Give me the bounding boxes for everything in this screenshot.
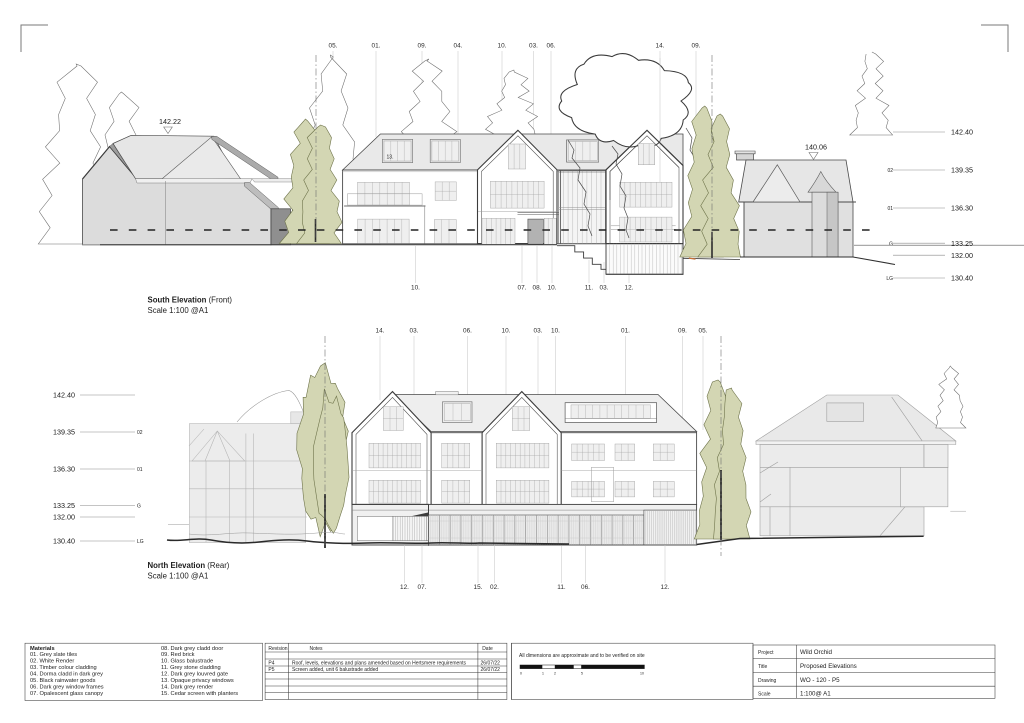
svg-text:09.: 09. xyxy=(678,328,687,335)
svg-text:01.: 01. xyxy=(621,328,630,335)
svg-text:132.00: 132.00 xyxy=(951,251,973,260)
svg-text:08. Dark grey cladd door: 08. Dark grey cladd door xyxy=(161,646,223,652)
svg-text:02: 02 xyxy=(887,168,893,174)
svg-text:Materials: Materials xyxy=(30,646,55,652)
svg-text:05.: 05. xyxy=(699,328,708,335)
svg-text:11.: 11. xyxy=(585,285,594,292)
svg-text:06. Dark grey window frames: 06. Dark grey window frames xyxy=(30,685,104,691)
svg-text:Screen added, unit 6 balustrad: Screen added, unit 6 balustrade added xyxy=(292,667,378,673)
svg-text:Roof, levels, elevations and p: Roof, levels, elevations and plans amend… xyxy=(292,660,466,666)
svg-text:10.: 10. xyxy=(498,43,507,50)
svg-text:10.: 10. xyxy=(551,328,560,335)
svg-text:14. Dark grey render: 14. Dark grey render xyxy=(161,685,213,691)
svg-text:LG: LG xyxy=(886,276,893,282)
svg-text:12. Dark grey louvred gate: 12. Dark grey louvred gate xyxy=(161,672,228,678)
svg-text:G: G xyxy=(889,241,893,247)
svg-text:10: 10 xyxy=(640,672,644,676)
svg-text:03.: 03. xyxy=(529,43,538,50)
svg-text:11. Grey stone cladding: 11. Grey stone cladding xyxy=(161,665,221,671)
svg-text:142.40: 142.40 xyxy=(951,128,973,137)
svg-text:Revision: Revision xyxy=(268,646,287,652)
svg-text:09.: 09. xyxy=(692,43,701,50)
svg-text:04.: 04. xyxy=(454,43,463,50)
svg-text:South Elevation (Front): South Elevation (Front) xyxy=(148,296,233,305)
svg-text:26/07/22: 26/07/22 xyxy=(481,660,501,666)
svg-text:12.: 12. xyxy=(400,584,409,591)
svg-text:07.: 07. xyxy=(518,285,527,292)
svg-text:Notes: Notes xyxy=(310,646,324,652)
svg-text:LG: LG xyxy=(137,539,144,545)
svg-text:136.30: 136.30 xyxy=(53,465,75,474)
svg-text:Wild Orchid: Wild Orchid xyxy=(800,649,833,656)
svg-text:15.: 15. xyxy=(474,584,483,591)
svg-text:1:100@ A1: 1:100@ A1 xyxy=(800,690,831,697)
svg-text:Date: Date xyxy=(482,646,493,652)
svg-text:2: 2 xyxy=(554,672,556,676)
svg-text:Title: Title xyxy=(758,664,767,670)
svg-text:Scale 1:100 @A1: Scale 1:100 @A1 xyxy=(148,306,209,315)
svg-text:02: 02 xyxy=(137,430,143,436)
svg-text:139.35: 139.35 xyxy=(53,428,75,437)
svg-text:03.: 03. xyxy=(534,328,543,335)
svg-text:142.40: 142.40 xyxy=(53,391,75,400)
svg-text:09. Red brick: 09. Red brick xyxy=(161,652,195,658)
svg-text:10.: 10. xyxy=(502,328,511,335)
svg-text:132.00: 132.00 xyxy=(53,513,75,522)
svg-text:10.: 10. xyxy=(548,285,557,292)
svg-text:Scale: Scale xyxy=(758,691,771,697)
svg-text:08.: 08. xyxy=(533,285,542,292)
svg-text:133.25: 133.25 xyxy=(951,239,973,248)
svg-text:G: G xyxy=(137,504,141,510)
svg-text:04. Dorma cladd in dark grey: 04. Dorma cladd in dark grey xyxy=(30,672,103,678)
svg-text:02.: 02. xyxy=(490,584,499,591)
svg-text:06.: 06. xyxy=(547,43,556,50)
svg-text:10.: 10. xyxy=(411,285,420,292)
svg-text:07.: 07. xyxy=(418,584,427,591)
svg-text:0: 0 xyxy=(520,672,522,676)
svg-text:14.: 14. xyxy=(656,43,665,50)
svg-text:133.25: 133.25 xyxy=(53,501,75,510)
svg-text:1: 1 xyxy=(542,672,544,676)
svg-text:Proposed Elevations: Proposed Elevations xyxy=(800,663,857,670)
svg-text:Scale 1:100 @A1: Scale 1:100 @A1 xyxy=(148,572,209,581)
svg-text:07. Opalescent glass canopy: 07. Opalescent glass canopy xyxy=(30,691,103,697)
svg-text:05.: 05. xyxy=(329,43,338,50)
svg-text:5: 5 xyxy=(581,672,583,676)
svg-text:02. White Render: 02. White Render xyxy=(30,659,74,665)
svg-text:01: 01 xyxy=(137,467,143,473)
svg-text:09.: 09. xyxy=(418,43,427,50)
svg-text:03. Timber colour cladding: 03. Timber colour cladding xyxy=(30,665,97,671)
svg-text:03.: 03. xyxy=(600,285,609,292)
svg-text:26/07/22: 26/07/22 xyxy=(481,667,501,673)
svg-text:All dimensions are approximate: All dimensions are approximate and to be… xyxy=(519,653,645,659)
svg-text:12.: 12. xyxy=(625,285,634,292)
svg-text:13. Opaque privacy windows: 13. Opaque privacy windows xyxy=(161,678,234,684)
svg-text:06.: 06. xyxy=(581,584,590,591)
svg-text:10. Glass balustrade: 10. Glass balustrade xyxy=(161,659,213,665)
svg-text:12.: 12. xyxy=(661,584,670,591)
svg-text:North Elevation (Rear): North Elevation (Rear) xyxy=(148,561,230,570)
svg-text:142.22: 142.22 xyxy=(159,117,181,126)
svg-text:01. Grey slate tiles: 01. Grey slate tiles xyxy=(30,652,77,658)
svg-text:Project: Project xyxy=(758,650,774,656)
svg-text:11.: 11. xyxy=(557,584,566,591)
svg-text:Drawing: Drawing xyxy=(758,678,777,684)
svg-text:130.40: 130.40 xyxy=(951,274,973,283)
svg-text:01.: 01. xyxy=(372,43,381,50)
svg-text:03.: 03. xyxy=(410,328,419,335)
svg-text:13.: 13. xyxy=(387,155,394,161)
svg-text:01: 01 xyxy=(887,206,893,212)
svg-text:05. Black rainwater goods: 05. Black rainwater goods xyxy=(30,678,96,684)
svg-text:15. Cedar screen with planters: 15. Cedar screen with planters xyxy=(161,691,238,697)
svg-text:WO - 120 - P5: WO - 120 - P5 xyxy=(800,677,840,684)
svg-text:06.: 06. xyxy=(463,328,472,335)
svg-text:136.30: 136.30 xyxy=(951,204,973,213)
svg-text:P4: P4 xyxy=(268,660,274,666)
svg-text:140.06: 140.06 xyxy=(805,143,827,152)
svg-text:139.35: 139.35 xyxy=(951,166,973,175)
svg-text:P5: P5 xyxy=(268,667,274,673)
svg-text:130.40: 130.40 xyxy=(53,537,75,546)
svg-text:14.: 14. xyxy=(376,328,385,335)
